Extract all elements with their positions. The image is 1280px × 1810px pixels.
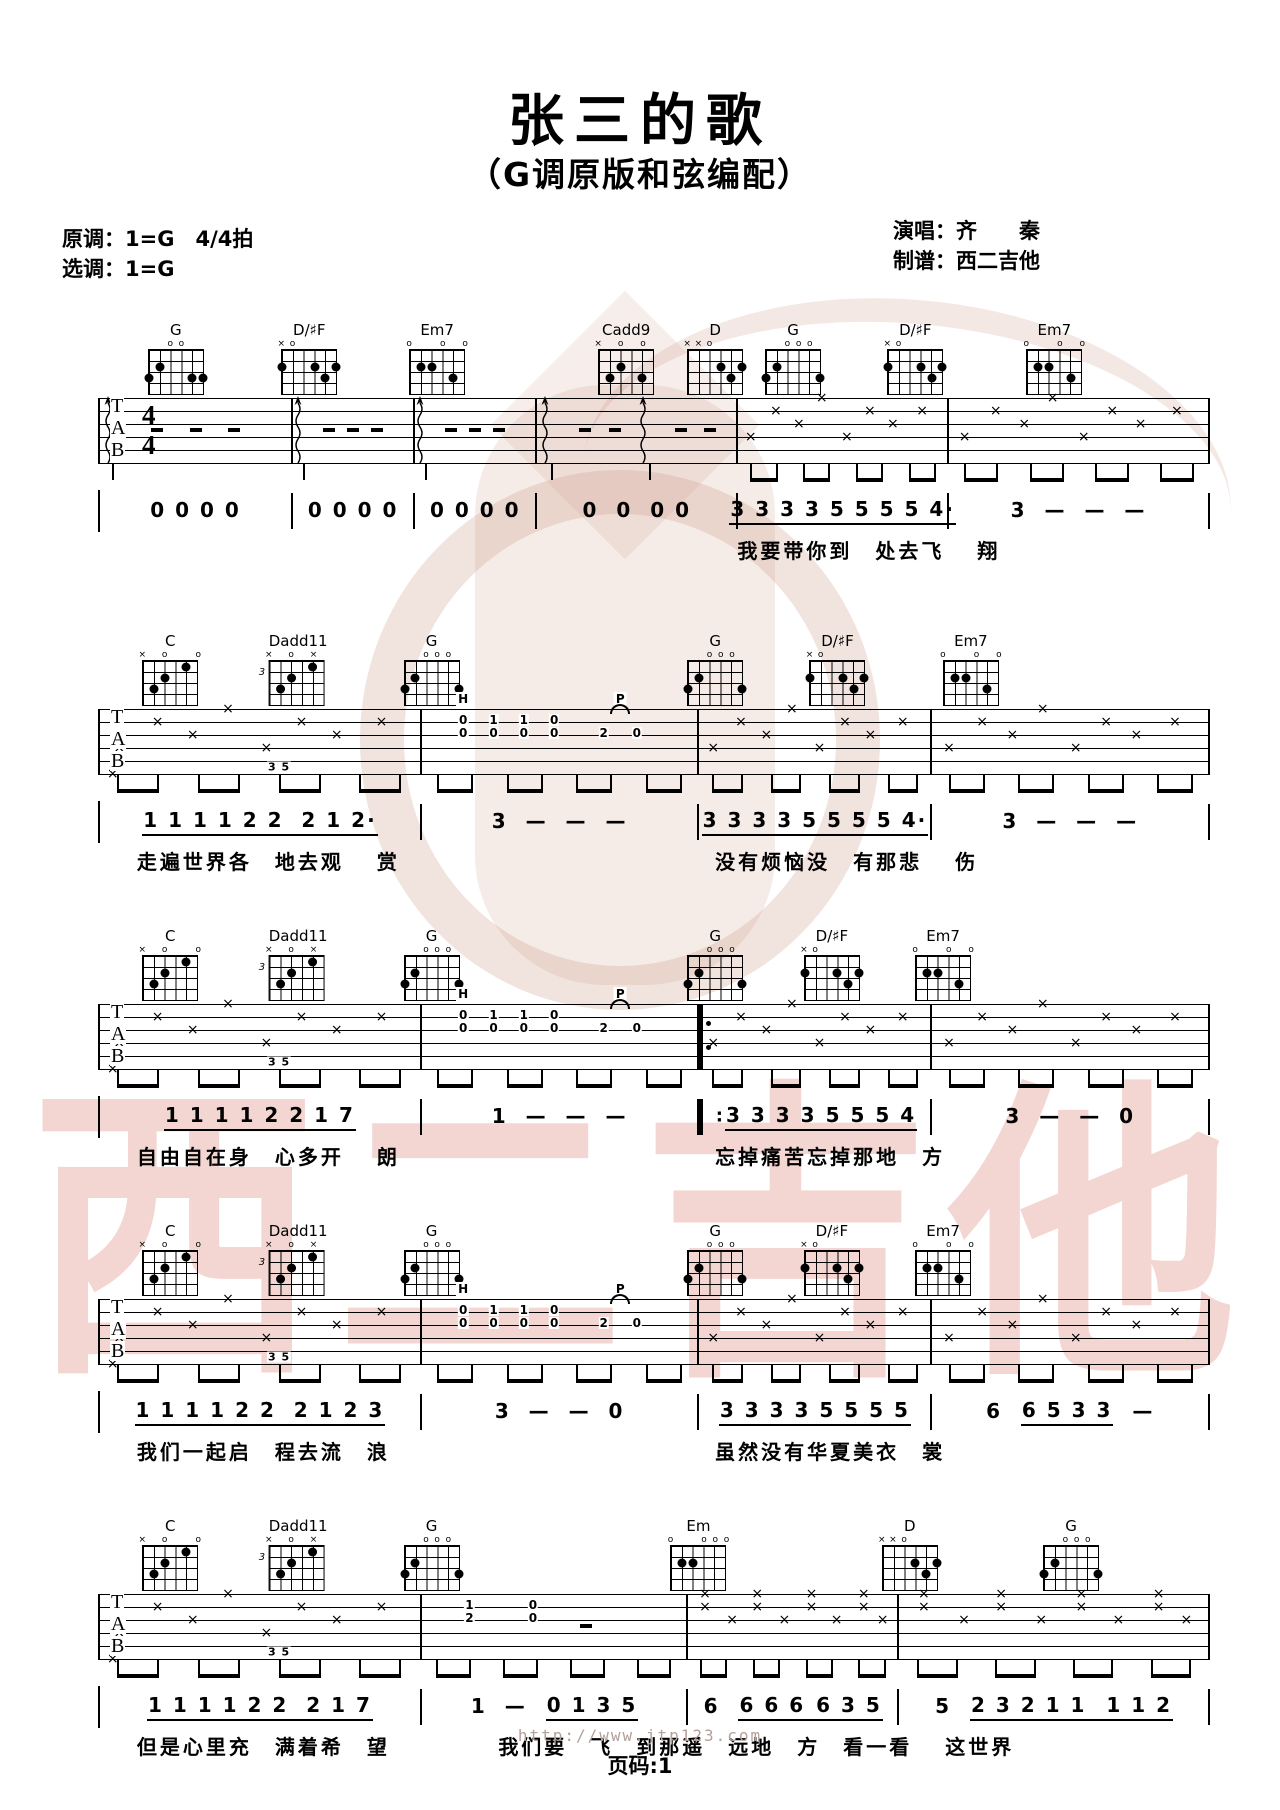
finger-dot [150, 1569, 159, 1578]
beam-group [712, 775, 742, 793]
rest-dash [675, 428, 687, 432]
tab-x-mark: × [1180, 1613, 1192, 1627]
page-title: 张三的歌 [0, 76, 1280, 157]
finger-dot [411, 1263, 420, 1272]
jianpu-notes: — [1113, 1399, 1155, 1425]
finger-dot [762, 373, 771, 382]
finger-dot [933, 1263, 942, 1272]
tab-x-mark: × [831, 1613, 843, 1627]
chord-diagram: C×oo [142, 633, 198, 706]
string-markers: oo [148, 339, 204, 349]
finger-dot [961, 673, 970, 682]
beam-group [507, 775, 543, 793]
string-markers: ×o× [269, 650, 325, 660]
open-string-marker: o [618, 339, 624, 349]
finger-dot [955, 1274, 964, 1283]
chord-grid-wrap: ×o [804, 945, 860, 1001]
measure: 00101000HP20 [422, 709, 700, 775]
finger-dot [400, 684, 409, 693]
tab-clef-letter: A [110, 1024, 126, 1044]
open-string-marker: o [946, 1240, 952, 1250]
beam-group [279, 1365, 321, 1383]
rest-dash [190, 428, 202, 432]
finger-dot [816, 373, 825, 382]
tab-x-mark: × [1169, 1305, 1181, 1319]
finger-dot [922, 1263, 931, 1272]
beam-group [949, 1365, 985, 1383]
rhythm-beams [98, 775, 1210, 799]
chord-diagram: D/♯F×o [809, 633, 865, 706]
tab-x-mark: × [260, 1036, 272, 1050]
time-signature-number: 4 [142, 431, 156, 459]
chord-grid [404, 660, 460, 706]
jianpu-notes: 1 1 1 1 2 2 1 7 [164, 1103, 356, 1131]
tab-x-mark: × [1153, 1600, 1165, 1614]
muted-string-marker: × [138, 1535, 146, 1545]
tab-fret-number: 0 [528, 1612, 538, 1624]
chord-name: Dadd11 [269, 1223, 328, 1239]
open-string-marker: o [729, 945, 735, 955]
tab-clef-letter: T [110, 1002, 124, 1022]
hammer-on-label: H [456, 692, 470, 706]
string-markers: ×oo [142, 945, 198, 955]
beam-group [646, 1070, 682, 1088]
tab-x-mark: × [152, 1010, 164, 1024]
chord-grid-wrap: ooo [404, 1240, 460, 1296]
chord-diagram: Gooo [404, 928, 460, 1001]
muted-string-marker: × [884, 339, 892, 349]
tab-x-mark: × [331, 728, 343, 742]
finger-dot [678, 1558, 687, 1567]
chord-name: G [404, 633, 460, 649]
chord-diagram: Dadd11×o×3 [269, 1518, 328, 1591]
muted-string-marker: × [800, 1240, 808, 1250]
tab-fret-number: 1 [488, 714, 498, 726]
finger-dot [844, 1274, 853, 1283]
chord-grid [943, 660, 999, 706]
chord-grid-wrap: ×oo [142, 650, 198, 706]
finger-dot [800, 968, 809, 977]
beam-group [279, 775, 321, 793]
chord-grid [598, 349, 654, 395]
chord-name: C [142, 928, 198, 944]
jianpu-bar: 0 0 0 0 [537, 493, 738, 529]
muted-string-marker: × [310, 1535, 318, 1545]
tab-fret-number: 0 [549, 714, 559, 726]
muted-string-marker: × [265, 945, 273, 955]
measure: ×××××××××3 5 [100, 1004, 422, 1070]
chord-grid-wrap: oooo [670, 1535, 726, 1591]
tab-x-mark: × [1100, 715, 1112, 729]
jianpu-bar: 1 1 1 1 2 2 2 1 2 3 [100, 1394, 422, 1430]
finger-dot [182, 662, 191, 671]
bass-run-numbers: 3 5 [267, 1352, 291, 1363]
tab-x-mark: × [152, 1305, 164, 1319]
string-markers: ×oo [598, 339, 654, 349]
chord-name: C [142, 1223, 198, 1239]
beam-group [1018, 1070, 1054, 1088]
muted-string-marker: × [310, 650, 318, 660]
tab-x-mark: × [296, 1600, 308, 1614]
tab-x-mark: × [735, 1010, 747, 1024]
finger-dot [308, 662, 317, 671]
open-string-marker: o [896, 339, 902, 349]
page-number-label: 页码:1 [0, 1750, 1280, 1780]
beam-group [1151, 1660, 1191, 1678]
tab-x-mark: × [376, 1305, 388, 1319]
chord-row: C×ooDadd11×o×3GoooGoooD/♯F×oEm7ooo [98, 623, 1210, 709]
tab-x-mark: × [296, 1010, 308, 1024]
tab-x-mark: × [943, 1036, 955, 1050]
jianpu-notes: 1 — — — [491, 1104, 629, 1130]
finger-dot [854, 968, 863, 977]
open-string-marker: o [940, 650, 946, 660]
strum-arrow-icon [540, 396, 550, 466]
tab-fret-number: 1 [488, 1304, 498, 1316]
original-key-label: 原调：1=G [62, 227, 174, 251]
finger-dot [684, 1274, 693, 1283]
tab-x-mark: × [296, 715, 308, 729]
beam-group [117, 775, 159, 793]
measure: ×××××××××××× [899, 1594, 1210, 1660]
string-markers: ooo [409, 339, 465, 349]
beam-group [1018, 1365, 1054, 1383]
open-string-marker: o [162, 1240, 168, 1250]
chord-grid [1026, 349, 1082, 395]
beam-group [570, 1660, 605, 1678]
tab-x-mark: × [296, 1305, 308, 1319]
open-string-marker: o [1085, 1535, 1091, 1545]
open-string-marker: o [701, 1535, 707, 1545]
chord-name: D [687, 322, 743, 338]
jianpu-notes: 3 — — — [1010, 498, 1148, 524]
chord-grid-wrap: oo [148, 339, 204, 395]
chord-grid [687, 1250, 743, 1296]
string-markers: ooo [687, 945, 743, 955]
open-string-marker: o [288, 650, 294, 660]
beam-group [279, 1660, 321, 1678]
beam-group [1088, 1365, 1124, 1383]
lyric-phrase: 忘掉痛苦忘掉那地 方 [715, 1141, 945, 1170]
open-string-marker: o [196, 1535, 202, 1545]
chord-diagram: Emoooo [670, 1518, 726, 1591]
chord-name: G [687, 1223, 743, 1239]
chord-diagram: D××o [687, 322, 743, 395]
finger-dot [854, 1263, 863, 1272]
string-markers: ooo [404, 1240, 460, 1250]
string-markers: ×oo [142, 1535, 198, 1545]
beam-group [576, 1070, 612, 1088]
open-string-marker: o [288, 945, 294, 955]
measure [415, 398, 537, 464]
finger-dot [694, 673, 703, 682]
tab-x-mark: × [770, 404, 782, 418]
finger-dot [738, 684, 747, 693]
chord-grid-wrap: ooo [915, 945, 971, 1001]
open-string-marker: o [718, 1240, 724, 1250]
beam-group [117, 1660, 159, 1678]
tab-x-mark: × [761, 1318, 773, 1332]
fret-position-number: 3 [259, 1552, 265, 1563]
tab-fret-number: 0 [549, 1317, 559, 1329]
tab-x-mark: × [735, 1305, 747, 1319]
open-string-marker: o [707, 945, 713, 955]
chord-diagram: Gooo [687, 633, 743, 706]
jianpu-bar: 1 1 1 1 2 2 1 7 [100, 1099, 422, 1135]
finger-dot [694, 1263, 703, 1272]
tab-fret-number: 1 [519, 1304, 529, 1316]
beam-group [1157, 1070, 1193, 1088]
jianpu-bar: 3 3 3 3 5 5 5 5 4· [738, 493, 949, 529]
strum-stem [112, 464, 114, 480]
beam-group [1073, 1660, 1113, 1678]
muted-string-marker: × [265, 650, 273, 660]
finger-dot [449, 373, 458, 382]
chord-grid [687, 955, 743, 1001]
chord-grid-wrap: ooo [687, 650, 743, 706]
finger-dot [838, 673, 847, 682]
chord-diagram: Dadd11×o×3 [269, 633, 328, 706]
open-string-marker: o [179, 339, 185, 349]
string-markers: ×o× [269, 1535, 325, 1545]
chord-name: G [148, 322, 204, 338]
jianpu-bar: 5 2 3 2 1 1 1 1 2 [899, 1689, 1210, 1725]
chord-name: G [404, 928, 460, 944]
beam-group [1160, 464, 1194, 482]
jianpu-bar: 3 3 3 3 5 5 5 5 [699, 1394, 932, 1430]
open-string-marker: o [440, 339, 446, 349]
finger-dot [884, 362, 893, 371]
tab-x-mark: × [814, 1331, 826, 1345]
beam-group [437, 1070, 473, 1088]
open-string-marker: o [162, 945, 168, 955]
key-info: 原调：1=G 4/4拍 选调：1=G [62, 224, 253, 284]
chord-name: G [687, 633, 743, 649]
open-string-marker: o [406, 339, 412, 349]
tab-x-mark: × [222, 702, 234, 716]
jianpu-bar: 0 0 0 0 [415, 493, 537, 529]
beam-group [858, 1660, 885, 1678]
string-markers: ooo [765, 339, 821, 349]
chord-grid: 3 [269, 1545, 325, 1591]
finger-dot [182, 1547, 191, 1556]
chord-diagram: Goo [148, 322, 204, 395]
beam-group [637, 1660, 672, 1678]
tab-x-mark: × [865, 728, 877, 742]
open-string-marker: o [796, 339, 802, 349]
strum-stem [303, 464, 305, 480]
chord-grid-wrap: ooo [915, 1240, 971, 1296]
chord-name: G [765, 322, 821, 338]
measure [100, 398, 293, 464]
tab-x-mark: × [376, 1010, 388, 1024]
chord-diagram: C×oo [142, 1223, 198, 1296]
chord-grid [404, 1545, 460, 1591]
finger-dot [198, 373, 207, 382]
tab-x-mark: × [858, 1600, 870, 1614]
tab-x-mark: × [1070, 741, 1082, 755]
open-string-marker: o [434, 1240, 440, 1250]
rest-dash [469, 428, 481, 432]
tab-x-mark: × [1130, 1023, 1142, 1037]
chord-name: Em7 [915, 928, 971, 944]
chord-grid: 3 [269, 955, 325, 1001]
open-string-marker: o [912, 1240, 918, 1250]
jianpu-notes: 2 3 2 1 1 [970, 1693, 1087, 1721]
tab-fret-number: 0 [458, 1009, 468, 1021]
tab-x-mark: × [1078, 430, 1090, 444]
string-markers: ooo [404, 1535, 460, 1545]
tab-staff: TAB×××××××××3 500101000HP20×××××××××××××… [98, 709, 1210, 775]
chord-name: Em [670, 1518, 726, 1534]
measure: ×××××××××3 5 [100, 709, 422, 775]
chord-grid-wrap: ×oo [598, 339, 654, 395]
tab-clef-letter: A [110, 729, 126, 749]
muted-string-marker: × [265, 1535, 273, 1545]
finger-dot [276, 1569, 285, 1578]
finger-dot [689, 1558, 698, 1567]
tab-x-mark: × [222, 1587, 234, 1601]
finger-dot [310, 362, 319, 371]
chord-diagram: Gooo [687, 928, 743, 1001]
chord-diagram: D/♯F×o [804, 928, 860, 1001]
string-markers: ooo [1026, 339, 1082, 349]
tab-x-mark: × [1070, 1036, 1082, 1050]
repeat-start-sign [699, 1004, 703, 1070]
finger-dot [911, 1558, 920, 1567]
open-string-marker: o [162, 650, 168, 660]
beam-group [1157, 775, 1193, 793]
open-string-marker: o [713, 1535, 719, 1545]
tab-x-mark: × [726, 1613, 738, 1627]
jianpu-bar: 3 — — 0 [932, 1099, 1210, 1135]
tab-clef-letter: B [110, 1636, 125, 1656]
tab-x-mark: × [751, 1600, 763, 1614]
chord-name: Em7 [915, 1223, 971, 1239]
open-string-marker: o [640, 339, 646, 349]
rest-dash [445, 428, 457, 432]
strum-stem [425, 464, 427, 480]
tab-x-mark: × [897, 715, 909, 729]
tab-staff: TAB×××××××××3 51200×××××××××××××××××××××… [98, 1594, 1210, 1660]
open-string-marker: o [707, 339, 713, 349]
string-markers: ooo [687, 1240, 743, 1250]
chord-name: C [142, 633, 198, 649]
chord-grid-wrap: ×o×3 [269, 1240, 325, 1296]
source-url[interactable]: http://www.jtp123.com [0, 1726, 1280, 1745]
page-subtitle: （G调原版和弦编配） [0, 148, 1280, 196]
rest-dash [580, 1624, 592, 1628]
beam-group [712, 1365, 742, 1383]
beam-group [964, 464, 998, 482]
finger-dot [738, 979, 747, 988]
tab-clef-letter: B [110, 751, 125, 771]
open-string-marker: o [785, 339, 791, 349]
finger-dot [427, 362, 436, 371]
tab-system: C×ooDadd11×o×3GoooGoooD/♯F×oEm7oooTAB×××… [98, 918, 1210, 1169]
chord-grid [142, 1250, 198, 1296]
tab-x-mark: × [779, 1613, 791, 1627]
open-string-marker: o [196, 650, 202, 660]
finger-dot [950, 673, 959, 682]
beam-group [771, 775, 801, 793]
lyrics-line: 走遍世界各 地去观 赏没有烦恼没 有那悲 伤 [98, 844, 1210, 874]
chord-diagram: Gooo [404, 1518, 460, 1591]
tab-x-mark: × [786, 1292, 798, 1306]
tab-fret-number: 0 [519, 727, 529, 739]
finger-dot [276, 979, 285, 988]
jianpu-bar: 3 — — — [949, 493, 1210, 529]
finger-dot [772, 362, 781, 371]
tab-x-mark: × [260, 1331, 272, 1345]
tab-x-mark: × [786, 702, 798, 716]
finger-dot [182, 1252, 191, 1261]
beam-group [1157, 1365, 1193, 1383]
open-string-marker: o [974, 650, 980, 660]
finger-dot [287, 673, 296, 682]
finger-dot [150, 684, 159, 693]
muted-string-marker: × [138, 650, 146, 660]
chord-grid [148, 349, 204, 395]
beam-group [806, 1660, 833, 1678]
beam-group [753, 1660, 780, 1678]
chord-name: D/♯F [804, 928, 860, 944]
chord-name: D/♯F [809, 633, 865, 649]
chord-grid [687, 349, 743, 395]
beam-group [856, 464, 883, 482]
jianpu-notes: 0 1 3 5 [546, 1693, 639, 1721]
finger-dot [150, 1274, 159, 1283]
jianpu-notes: 6 [703, 1694, 739, 1720]
tab-x-mark: × [707, 1331, 719, 1345]
chord-diagram: D××o [882, 1518, 938, 1591]
chord-name: Dadd11 [269, 633, 328, 649]
chord-grid [281, 349, 337, 395]
open-string-marker: o [1057, 339, 1063, 349]
finger-dot [955, 979, 964, 988]
string-markers: ooo [687, 650, 743, 660]
rest-dash [228, 428, 240, 432]
tab-staff: TAB×××××××××3 500101000HP20×××××××××××××… [98, 1299, 1210, 1365]
finger-dot [605, 373, 614, 382]
muted-string-marker: × [138, 1240, 146, 1250]
jianpu-notes: 6 [985, 1399, 1021, 1425]
tab-x-mark: × [1047, 391, 1059, 405]
string-markers: ×o [804, 945, 860, 955]
beam-group [1088, 775, 1124, 793]
open-string-marker: o [196, 945, 202, 955]
finger-dot [150, 979, 159, 988]
open-string-marker: o [1063, 1535, 1069, 1545]
tab-x-mark: × [864, 404, 876, 418]
chord-grid [915, 955, 971, 1001]
jianpu-notes: 6 3 5 [806, 1693, 883, 1721]
jianpu-bar-repeat-start: 3 3 3 3 5 5 5 4 [699, 1099, 932, 1135]
chord-grid [1043, 1545, 1099, 1591]
open-string-marker: o [423, 1535, 429, 1545]
chord-grid [404, 1250, 460, 1296]
chord-diagram: D/♯F×o [281, 322, 337, 395]
beam-group [888, 1070, 918, 1088]
finger-dot [308, 1547, 317, 1556]
tab-x-mark: × [1070, 1331, 1082, 1345]
measure: ×××××××××3 5 [100, 1594, 422, 1660]
chord-grid-wrap: ooo [404, 1535, 460, 1591]
tab-x-mark: × [1100, 1305, 1112, 1319]
time-signature-label: 4/4拍 [195, 227, 253, 251]
beam-group [829, 1365, 859, 1383]
finger-dot [182, 957, 191, 966]
